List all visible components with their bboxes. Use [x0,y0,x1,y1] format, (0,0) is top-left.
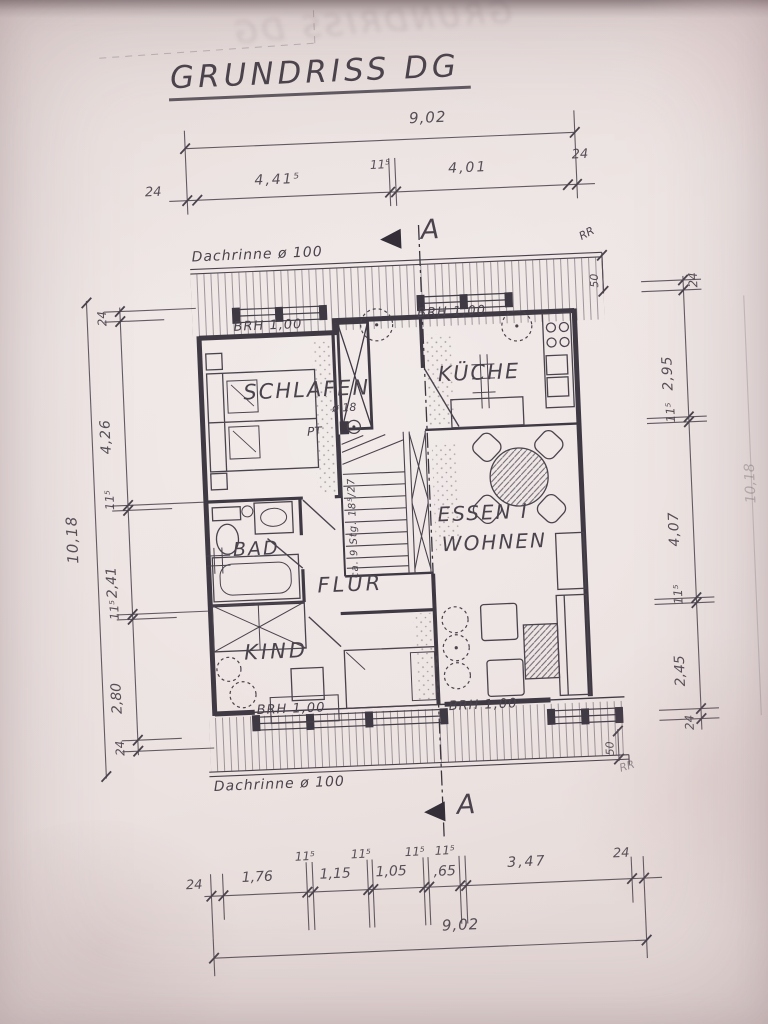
dim-right-part-1: 2,95 [660,355,675,391]
dim-bottom-part-0: 24 [186,879,203,893]
dim-bottom-overall: 9,02 [442,917,480,934]
dim-bottom-part-9: 3,47 [507,854,547,870]
dim-bottom-part-8: 11⁵ [434,844,455,857]
dim-bottom-part-7: ,65 [433,864,456,879]
dim-bottom-part-3: 1,15 [319,866,351,881]
scanned-floorplan-sheet: GRUNDRISS DG [0,0,768,1024]
photo-top-edge-shadow [0,0,768,18]
dim-right-part-6: 24 [683,715,696,731]
dim-top-part-3: 4,01 [448,160,488,176]
dim-right-overall: 10,18 [743,463,759,504]
column-type-label: PT [307,425,322,438]
window-sill-label-top-left: BRH 1,00 [233,318,302,334]
dim-top-part-1: 4,41⁵ [254,172,301,188]
room-label-schlafen: SCHLAFEN [243,377,371,403]
dim-left-part-4: 11⁵ [108,600,121,621]
dim-top-overall: 9,02 [409,110,447,127]
dim-bottom-part-6: 11⁵ [404,845,425,858]
dim-right-part-3: 4,07 [667,511,682,547]
drawing-rotated-layer: GRUNDRISS DG [0,0,768,1024]
room-label-kind: KIND [244,640,309,664]
dim-left-part-5: 2,80 [109,683,124,715]
dim-left-part-1: 4,26 [98,419,113,455]
downpipe-dim-bottom: 50 [604,741,616,755]
dim-right-part-2: 11⁵ [664,402,677,423]
dim-left-overall: 10,18 [64,515,81,564]
dim-bottom-part-10: 24 [613,847,630,861]
dim-bottom-part-4: 11⁵ [351,848,372,861]
dim-bottom-part-2: 11⁵ [295,850,316,863]
dim-left-part-2: 11⁵ [103,490,116,511]
window-sill-label-bottom-right: BRH 1,00 [448,697,517,713]
window-sill-label-bottom-left: BRH 1,00 [256,701,325,717]
dim-right-part-4: 11⁵ [672,584,685,605]
room-label-essen-line2: WOHNEN [441,530,547,554]
dim-bottom-part-5: 1,05 [375,864,407,879]
section-marker-a-top: A [420,216,440,244]
column-diameter-label: ø 18 [332,402,357,414]
dim-left-part-6: 24 [114,740,127,756]
room-label-bad: BAD [233,539,280,560]
room-label-kueche: KÜCHE [437,361,520,385]
dim-top-part-4: 24 [571,148,588,162]
room-label-essen-line1: ESSEN I [437,501,529,525]
section-marker-a-bottom: A [456,791,476,819]
dim-right-part-5: 2,45 [673,655,688,687]
dim-left-part-0: 24 [96,311,109,327]
dim-top-part-2: 11⁵ [370,158,391,171]
downpipe-dim-top: 50 [589,273,601,287]
dim-top-part-0: 24 [145,186,162,200]
dim-right-part-0: 24 [687,272,700,288]
dimension-ticks [75,123,716,968]
dim-left-part-3: 2,41 [105,567,120,599]
dim-bottom-part-1: 1,76 [241,870,273,885]
window-sill-label-top-right: BRH 1,00 [417,304,486,320]
